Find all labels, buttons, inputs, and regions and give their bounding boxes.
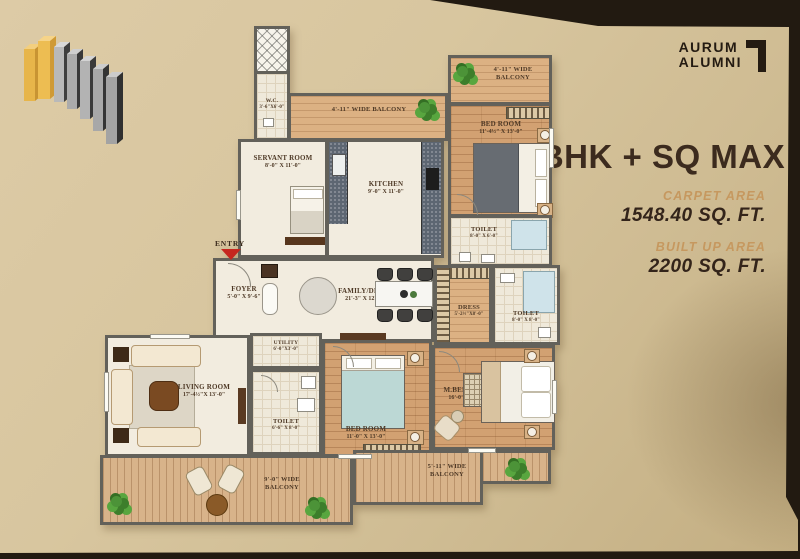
plant-icon	[509, 461, 520, 472]
dining-chair	[397, 268, 413, 281]
window	[549, 128, 554, 168]
shower-area	[511, 220, 547, 250]
round-table	[299, 277, 337, 315]
window	[150, 334, 190, 339]
plant-icon	[111, 496, 122, 507]
window	[468, 448, 496, 453]
washbasin-unit	[262, 283, 278, 315]
cabinet	[261, 264, 278, 278]
entry-arrow-icon	[221, 249, 241, 260]
balcony-top-left: 4'-11" WIDE BALCONY	[288, 93, 448, 141]
side-table	[113, 428, 129, 443]
balcony-bottom-left: 9'-0" WIDE BALCONY	[100, 455, 353, 525]
beige-card-background: AURUM ALUMNI 3BHK + SQ MAX CARPET AREA 1…	[0, 0, 800, 559]
dining-chair	[417, 268, 433, 281]
side-table	[113, 347, 129, 362]
dining-chair	[377, 309, 393, 322]
balcony-bottom-right-step	[480, 450, 551, 484]
lounge-chair	[184, 465, 214, 497]
nightstand	[407, 430, 424, 445]
nightstand	[407, 351, 424, 366]
wardrobe	[450, 268, 489, 279]
wardrobe	[463, 373, 483, 407]
sofa	[137, 427, 201, 447]
room-bedroom-mid: BED ROOM 11'-0" X 13'-0"	[322, 340, 432, 457]
kitchen-sink	[332, 154, 346, 176]
room-dress: DRESS 5'-2½"X8'-0"	[434, 265, 492, 345]
window	[104, 372, 109, 412]
room-bedroom-top: BED ROOM 11'-4½" X 13'-0"	[448, 103, 552, 217]
door-arc	[228, 263, 251, 286]
wc-pan	[538, 327, 551, 338]
plant-icon	[309, 500, 320, 511]
nightstand	[524, 349, 540, 363]
side-table	[451, 410, 464, 423]
dining-chair	[377, 268, 393, 281]
balcony-top-right: 4'-11" WIDE BALCONY	[448, 55, 552, 105]
room-family-dining: FAMILY/DINING 21'-3" X 12'-4½" FOYER 5'-…	[213, 258, 434, 342]
wardrobe	[506, 107, 550, 119]
shower-area	[523, 271, 555, 313]
window	[338, 454, 372, 459]
wc-pan	[459, 252, 471, 262]
door-arc	[261, 375, 278, 392]
washbasin	[500, 273, 515, 283]
sofa	[111, 369, 133, 425]
entry-label: ENTRY	[208, 239, 252, 248]
bed	[481, 361, 555, 423]
dining-chair	[397, 309, 413, 322]
dining-chair	[417, 309, 433, 322]
door-arc	[439, 351, 460, 372]
servant-bed	[290, 186, 324, 234]
nightstand	[524, 425, 540, 439]
washbasin	[481, 254, 495, 263]
window	[236, 190, 241, 220]
room-kitchen: KITCHEN 9'-0" X 11'-0"	[326, 139, 444, 258]
room-living: LIVING ROOM 17'-4½"X 13'-0"	[105, 335, 250, 457]
floor-plan: W.C. 3'-6"X6'-0" 4'-11" WIDE BALCONY SER…	[0, 0, 800, 559]
kitchen-counter-right	[421, 142, 441, 254]
room-wc: W.C. 3'-6"X6'-0"	[254, 71, 290, 141]
window	[552, 380, 557, 414]
plant-icon	[457, 66, 468, 77]
balcony-bottom-right: 5'-11" WIDE BALCONY	[353, 450, 483, 505]
wc-pan	[263, 118, 274, 127]
lounge-chair	[216, 463, 246, 495]
door-arc	[333, 346, 354, 367]
room-mbedroom: M.BED ROOM 16'-0" X 13'-0"	[432, 345, 555, 450]
duct-shaft	[254, 26, 290, 74]
room-toilet-top: TOILET 8'-0" X 6'-0"	[448, 215, 552, 267]
room-toilet-bottom: TOILET 6'-6" X 8'-0"	[250, 369, 322, 455]
plant-icon	[419, 102, 430, 113]
room-utility: UTILITY 6'-0"X3'-0"	[250, 333, 322, 369]
round-table	[206, 494, 228, 516]
room-toilet-mid: TOILET 8'-0" X 8'-0"	[492, 265, 560, 345]
servant-chest	[285, 237, 325, 245]
wc-pan	[301, 376, 316, 389]
dining-table	[375, 281, 433, 307]
sofa	[131, 345, 201, 367]
washbasin	[297, 398, 315, 412]
flyer-canvas: AURUM ALUMNI 3BHK + SQ MAX CARPET AREA 1…	[0, 0, 800, 559]
